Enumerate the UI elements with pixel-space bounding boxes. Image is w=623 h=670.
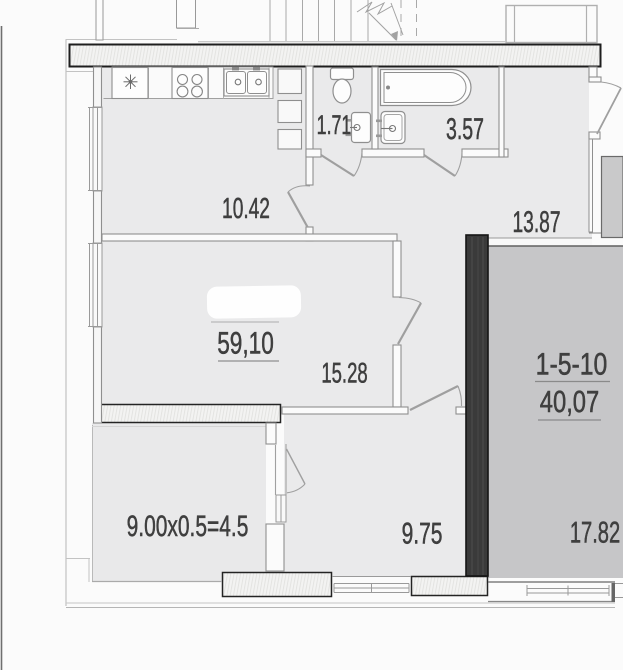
svg-text:9.00x0.5=4.5: 9.00x0.5=4.5 xyxy=(127,510,249,543)
svg-text:3.57: 3.57 xyxy=(446,113,484,146)
svg-text:13.87: 13.87 xyxy=(512,206,560,239)
svg-text:9.75: 9.75 xyxy=(402,518,443,551)
svg-text:1-5-10: 1-5-10 xyxy=(536,347,608,382)
svg-text:40,07: 40,07 xyxy=(540,385,600,419)
svg-text:10.42: 10.42 xyxy=(222,193,270,225)
svg-text:59,10: 59,10 xyxy=(217,326,274,361)
svg-text:15.28: 15.28 xyxy=(321,358,367,390)
svg-text:17.82: 17.82 xyxy=(570,517,620,550)
svg-text:1.71: 1.71 xyxy=(317,110,352,140)
